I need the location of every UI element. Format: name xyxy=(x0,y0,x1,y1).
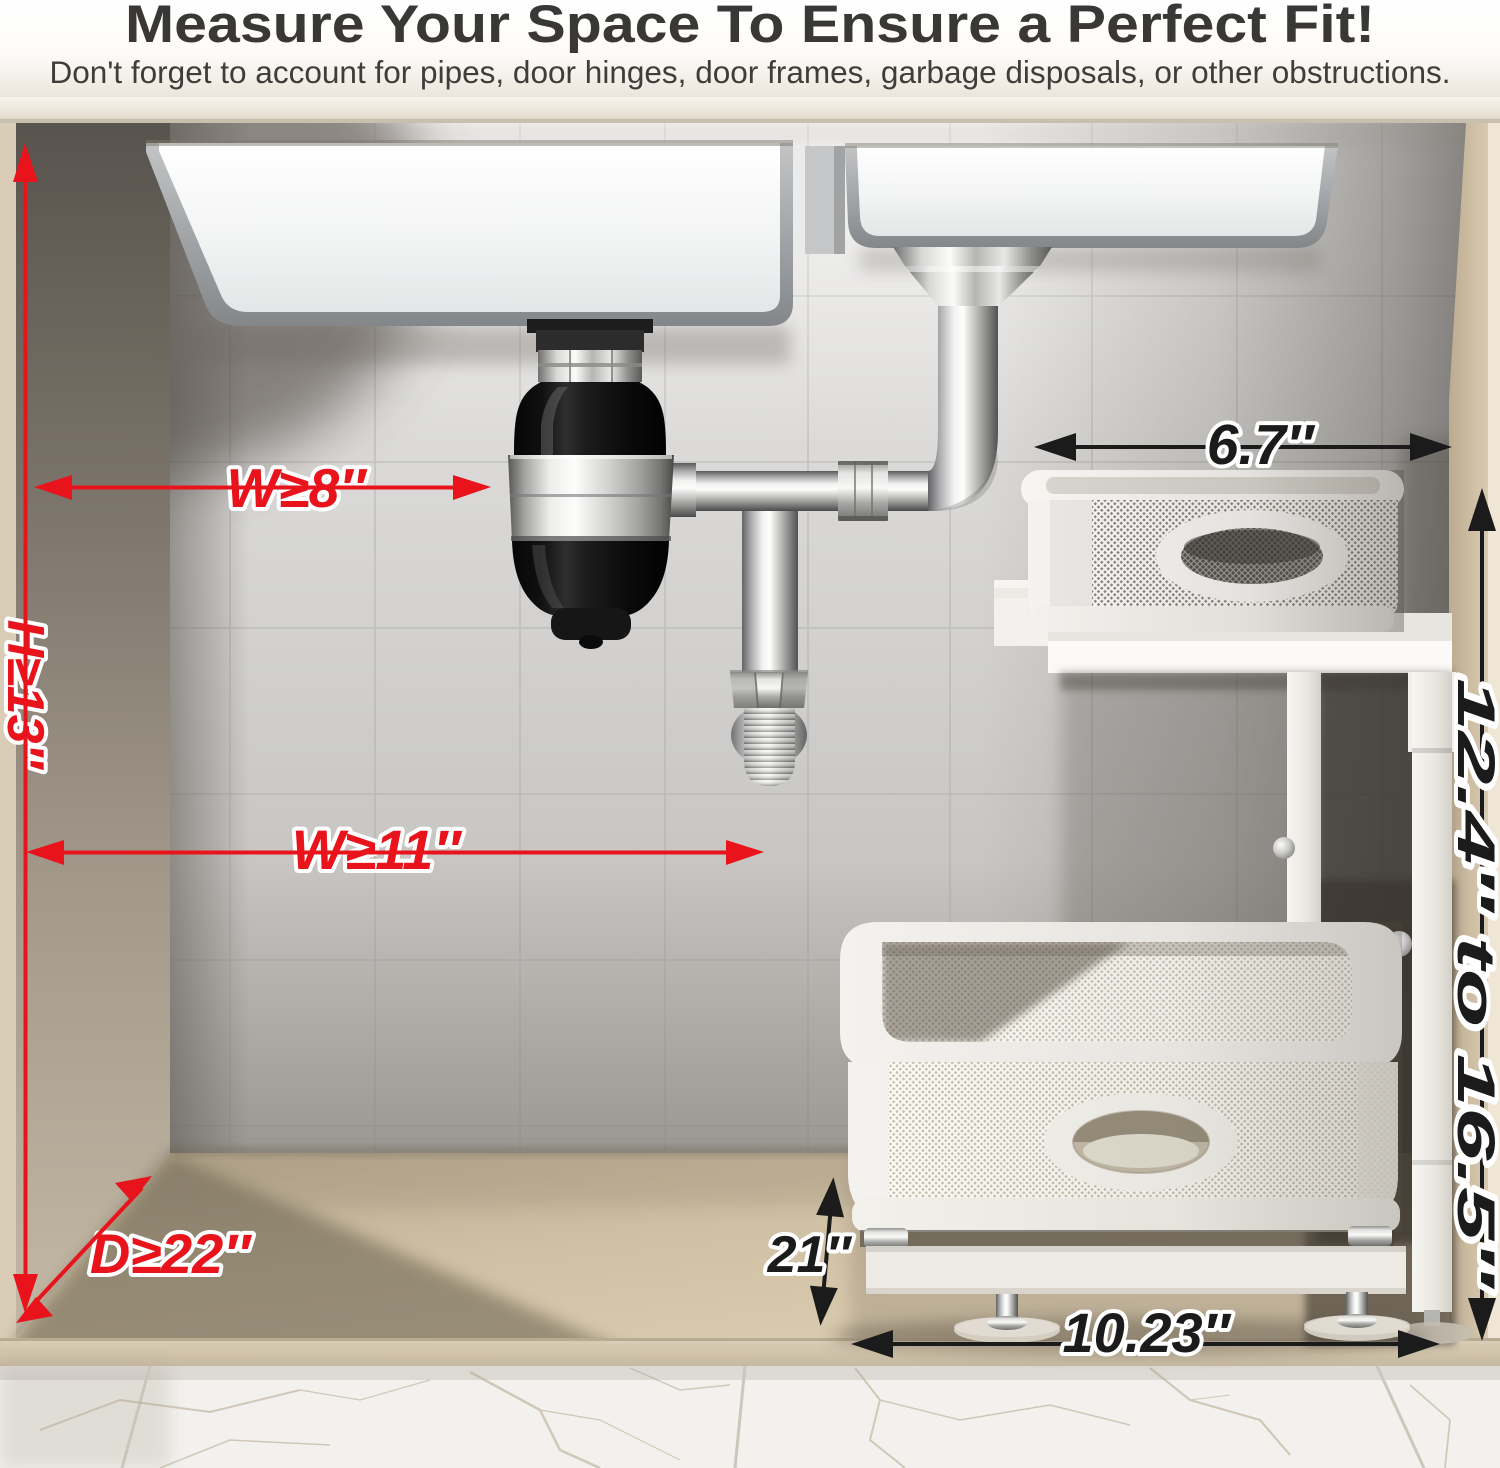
svg-text:W≥11″: W≥11″ xyxy=(292,818,463,881)
svg-text:21″: 21″ xyxy=(767,1226,853,1284)
svg-text:10.23″: 10.23″ xyxy=(1063,1301,1232,1364)
svg-text:Measure Your Space To Ensure a: Measure Your Space To Ensure a Perfect F… xyxy=(125,0,1375,54)
svg-text:12.4″ to 16.5″: 12.4″ to 16.5″ xyxy=(1446,678,1500,1291)
svg-text:Don't forget to account for pi: Don't forget to account for pipes, door … xyxy=(50,54,1451,90)
svg-text:D≥22″: D≥22″ xyxy=(90,1222,252,1285)
svg-text:6.7″: 6.7″ xyxy=(1207,413,1316,477)
